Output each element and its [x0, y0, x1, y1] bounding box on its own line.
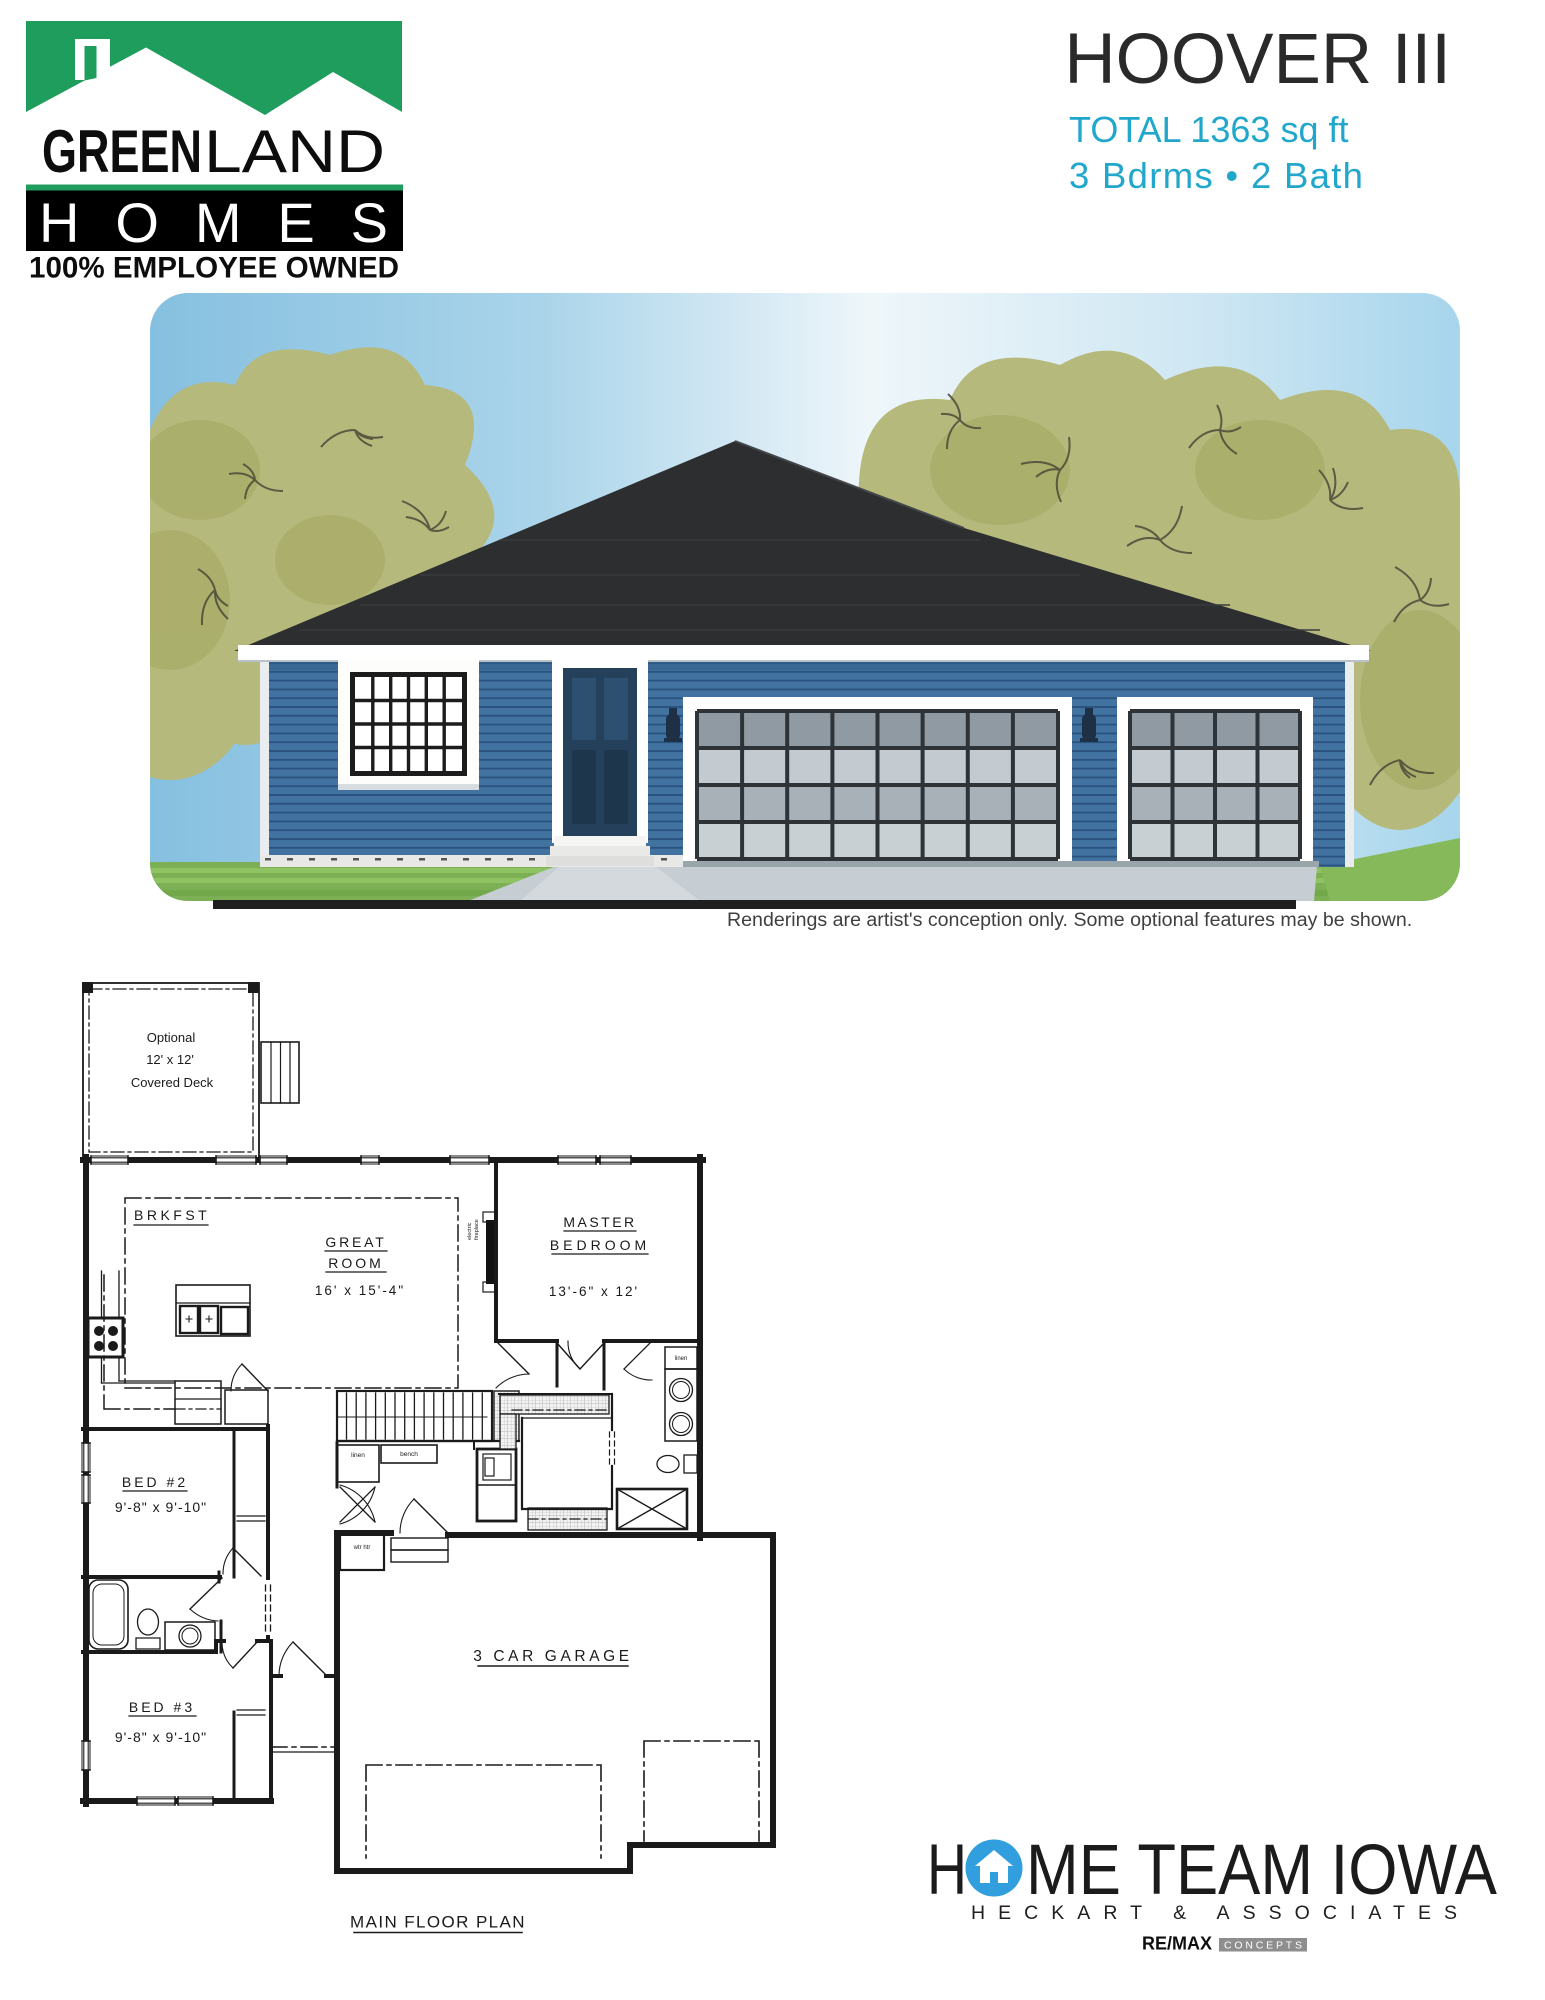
- svg-text:GREEN: GREEN: [42, 117, 202, 185]
- svg-text:linen: linen: [675, 1356, 688, 1362]
- svg-text:9'-8" x 9'-10": 9'-8" x 9'-10": [115, 1729, 207, 1745]
- svg-text:RE/MAX: RE/MAX: [1142, 1934, 1212, 1954]
- svg-text:12' x 12': 12' x 12': [146, 1052, 194, 1067]
- svg-text:Optional: Optional: [147, 1030, 196, 1045]
- svg-text:H: H: [927, 1831, 967, 1910]
- svg-text:MAIN FLOOR PLAN: MAIN FLOOR PLAN: [350, 1913, 526, 1932]
- svg-text:13'-6" x 12': 13'-6" x 12': [549, 1284, 639, 1299]
- svg-text:fireplace: fireplace: [474, 1219, 480, 1240]
- svg-text:BEDROOM: BEDROOM: [550, 1237, 650, 1253]
- svg-text:BED #2: BED #2: [122, 1474, 188, 1490]
- svg-text:CONCEPTS: CONCEPTS: [1224, 1940, 1302, 1952]
- svg-text:MASTER: MASTER: [563, 1214, 636, 1230]
- svg-text:GREAT: GREAT: [325, 1234, 386, 1250]
- svg-text:ROOM: ROOM: [328, 1255, 384, 1271]
- svg-text:9'-8" x 9'-10": 9'-8" x 9'-10": [115, 1499, 207, 1515]
- svg-text:100% EMPLOYEE OWNED: 100% EMPLOYEE OWNED: [29, 252, 399, 285]
- svg-text:Covered Deck: Covered Deck: [131, 1075, 214, 1090]
- svg-text:16' x 15'-4": 16' x 15'-4": [315, 1283, 405, 1298]
- svg-text:ME TEAM IOWA: ME TEAM IOWA: [1026, 1831, 1498, 1910]
- svg-text:bench: bench: [400, 1451, 418, 1458]
- svg-text:electric: electric: [467, 1222, 473, 1240]
- svg-text:linen: linen: [351, 1452, 365, 1459]
- svg-text:LAND: LAND: [204, 117, 385, 185]
- svg-text:wtr htr: wtr htr: [353, 1545, 371, 1551]
- svg-text:BRKFST: BRKFST: [134, 1207, 210, 1223]
- svg-text:3 CAR GARAGE: 3 CAR GARAGE: [473, 1648, 632, 1665]
- svg-text:BED #3: BED #3: [129, 1699, 195, 1715]
